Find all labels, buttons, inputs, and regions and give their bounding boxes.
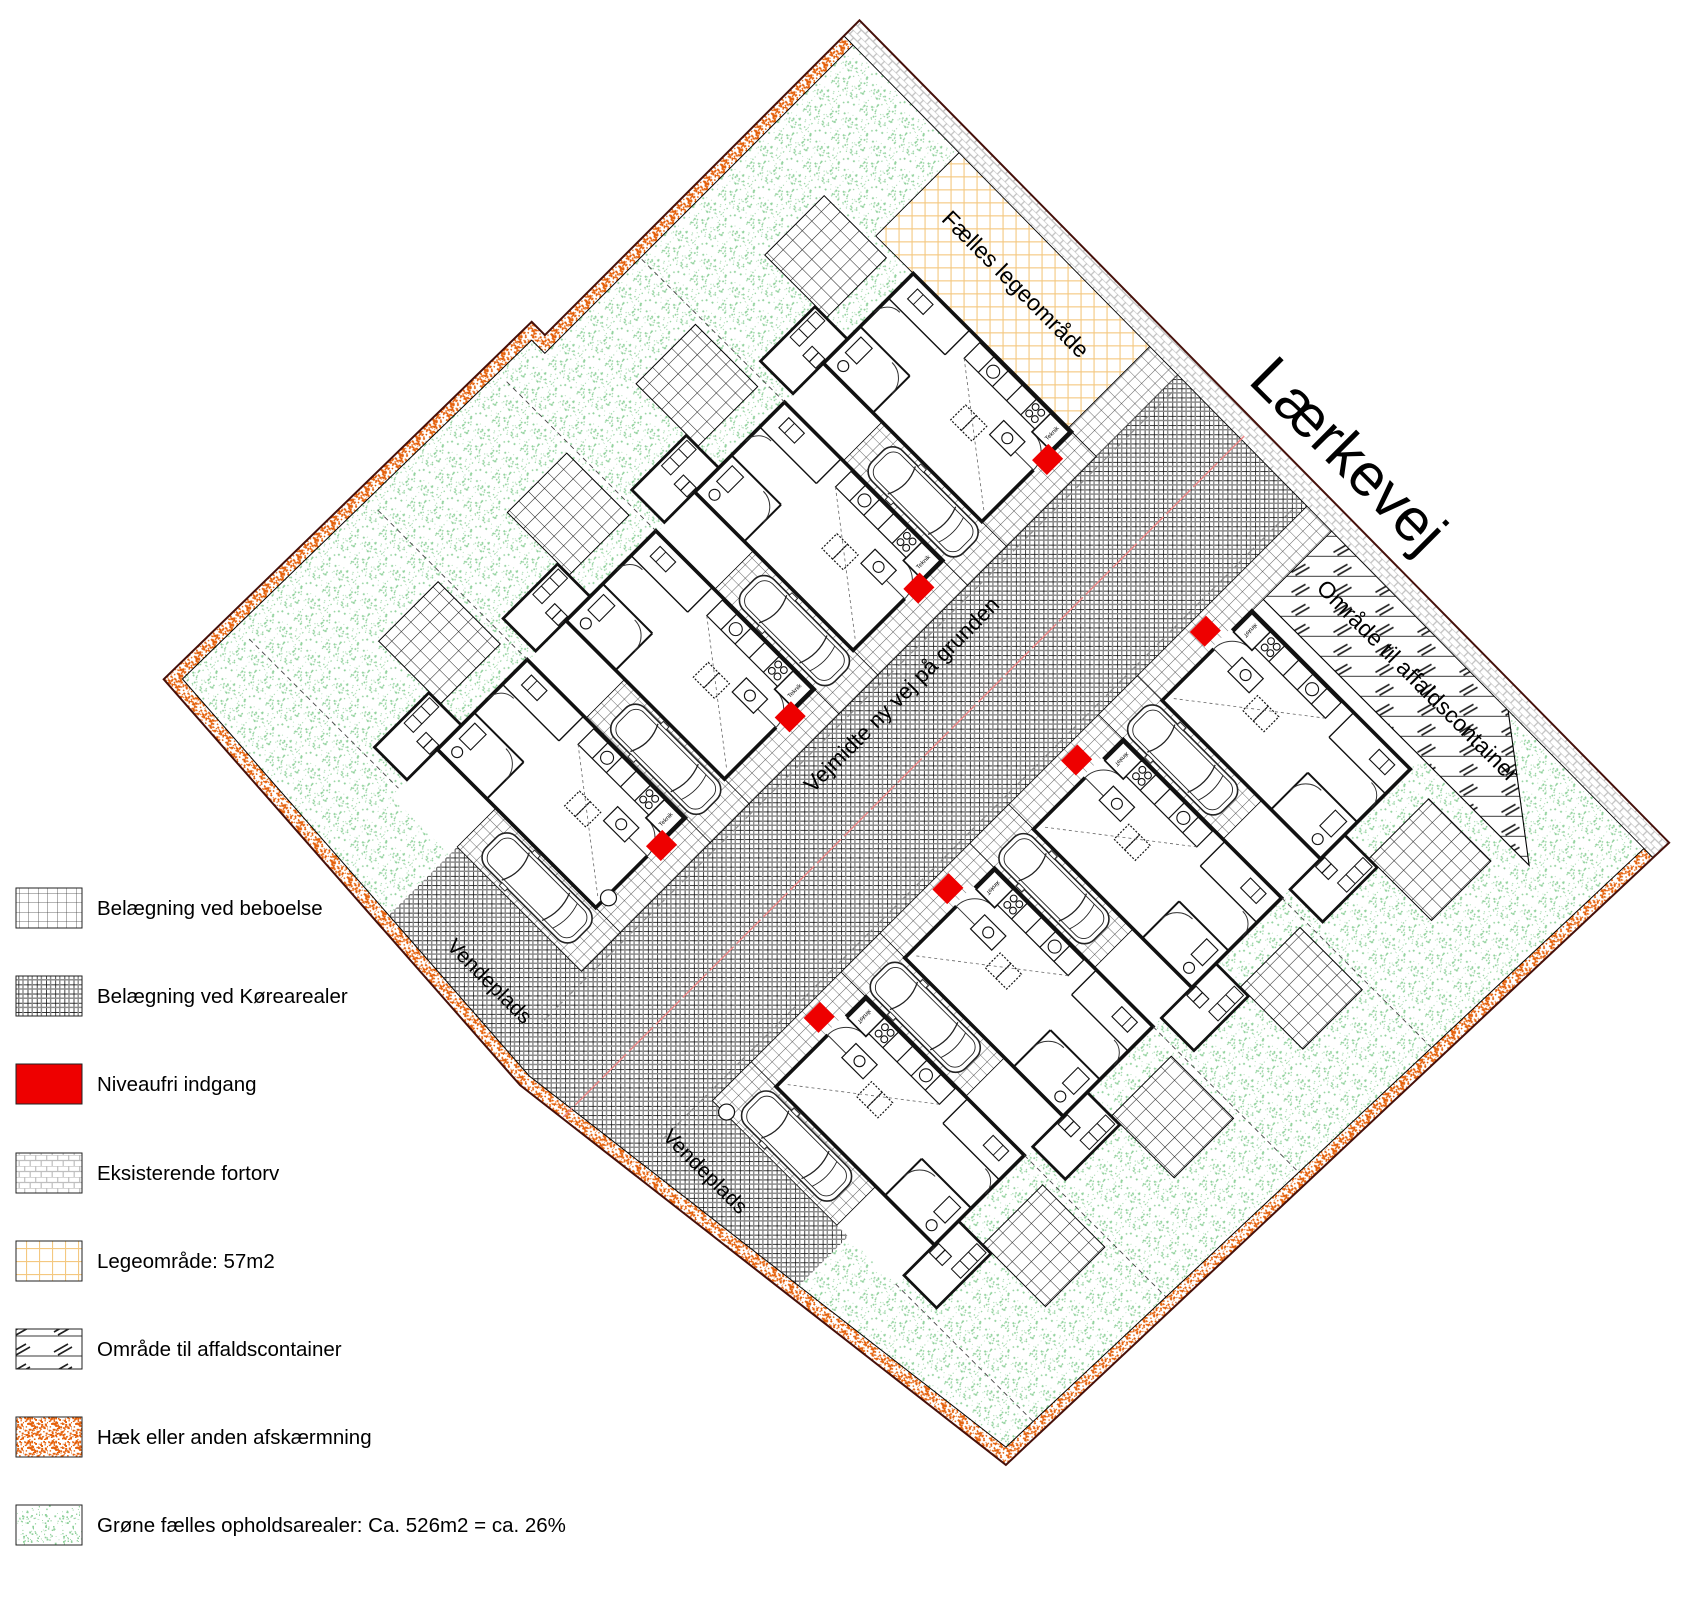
svg-text:Eksisterende fortorv: Eksisterende fortorv [97,1162,280,1185]
svg-text:Område til affaldscontainer: Område til affaldscontainer [97,1338,342,1361]
svg-text:Legeområde: 57m2: Legeområde: 57m2 [97,1250,275,1273]
svg-text:Grøne fælles opholdsarealer: C: Grøne fælles opholdsarealer: Ca. 526m2 =… [97,1514,566,1537]
svg-text:Belægning ved Kørearealer: Belægning ved Kørearealer [97,985,348,1008]
svg-text:Niveaufri indgang: Niveaufri indgang [97,1073,257,1096]
svg-text:Hæk eller anden afskærmning: Hæk eller anden afskærmning [97,1426,372,1449]
svg-text:Belægning ved beboelse: Belægning ved beboelse [97,897,323,920]
